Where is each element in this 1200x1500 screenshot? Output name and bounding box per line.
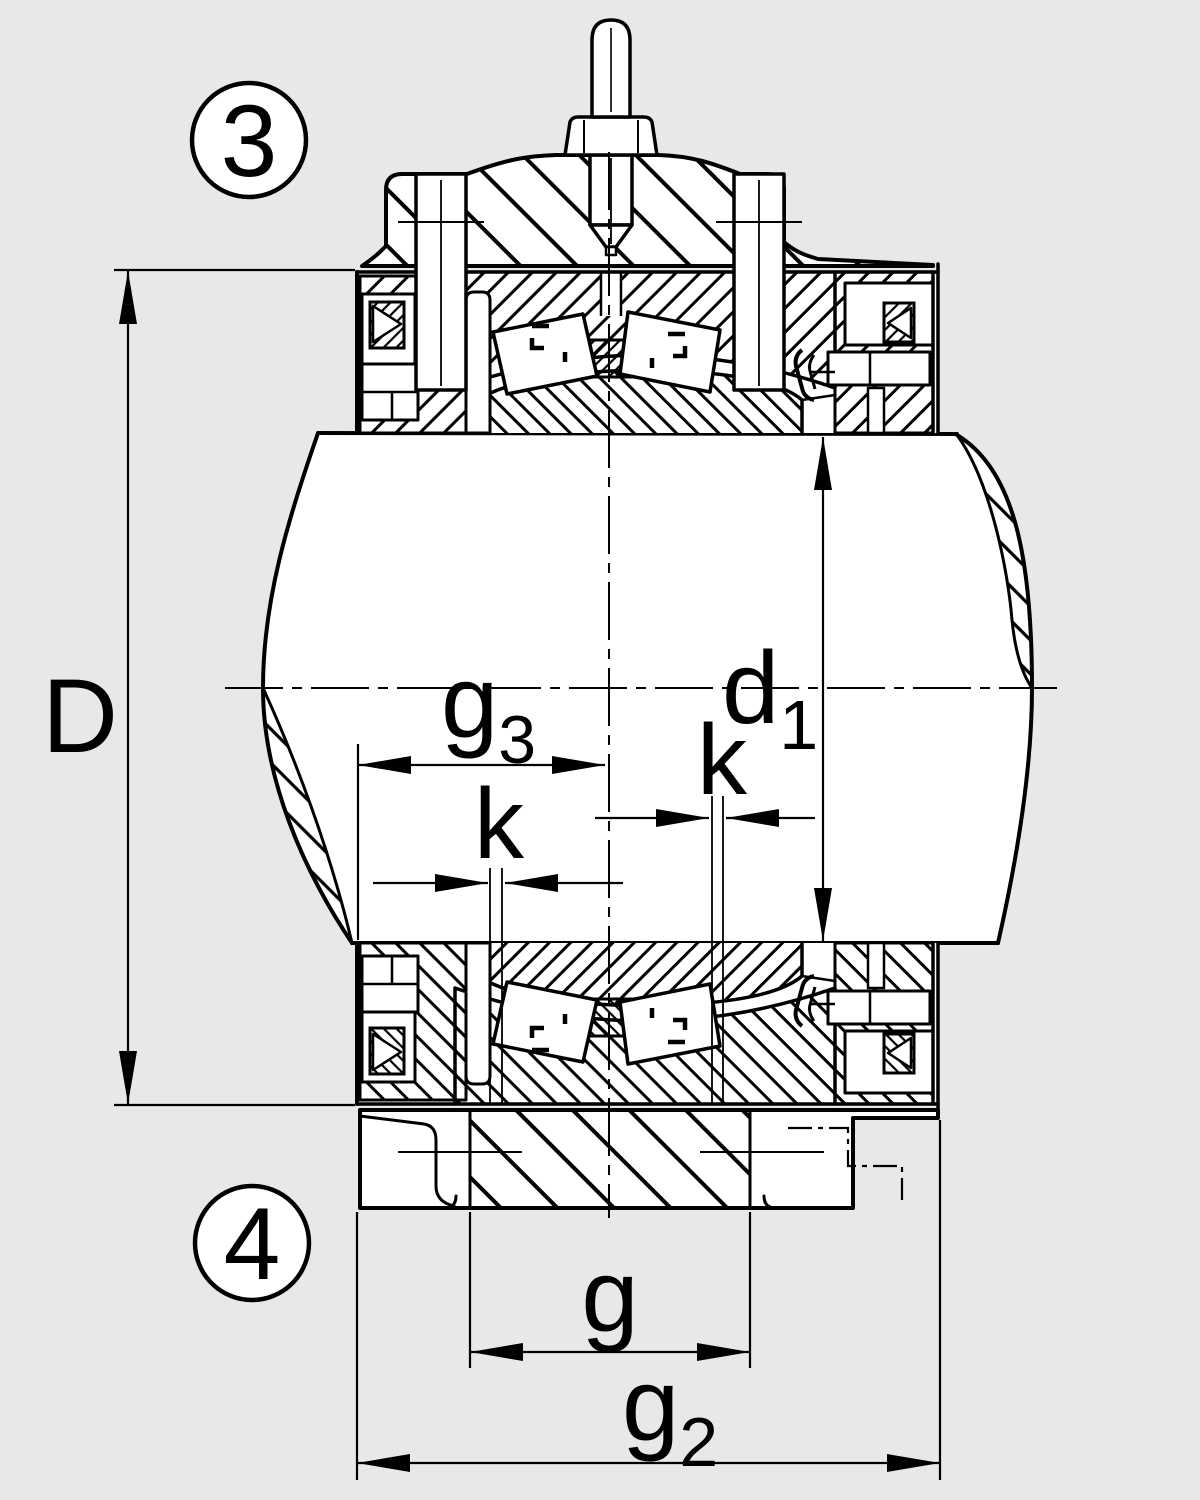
dim-k-right-label: k	[697, 704, 748, 816]
dim-g-label: g	[581, 1238, 638, 1353]
slot-right	[868, 388, 884, 433]
bearing-housing-section-drawing: D d1 g3 k k g g2	[0, 0, 1200, 1500]
callout-3-label: 3	[221, 84, 278, 198]
locating-ring-groove	[828, 352, 930, 385]
callout-4: 4	[195, 1186, 309, 1301]
callout-3: 3	[192, 83, 306, 198]
dim-k-left-label: k	[474, 768, 525, 880]
callout-4-label: 4	[224, 1187, 281, 1301]
dim-D-label: D	[42, 658, 118, 775]
bearing-and-seals-lower	[360, 943, 933, 1104]
lube-channel	[601, 272, 621, 316]
drawing-page: D d1 g3 k k g g2	[0, 0, 1200, 1500]
housing-base	[360, 1110, 938, 1208]
nipple-flange	[565, 117, 657, 155]
flinger-slot-left	[466, 292, 490, 433]
